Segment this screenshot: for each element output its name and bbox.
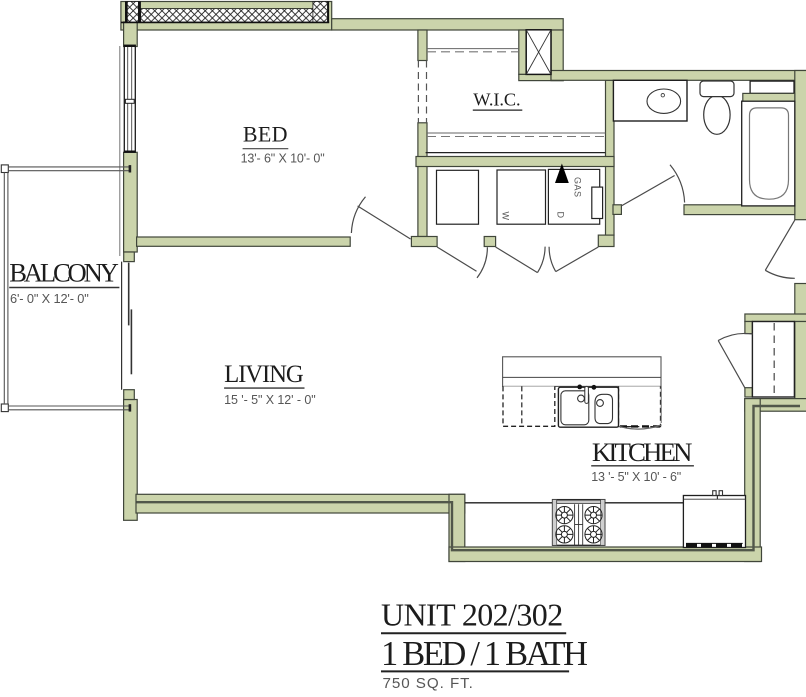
svg-text:W.I.C.: W.I.C.	[473, 89, 520, 109]
svg-text:6'- 0" X 12'- 0": 6'- 0" X 12'- 0"	[10, 291, 89, 306]
svg-text:BED: BED	[243, 121, 288, 146]
svg-text:13'- 6" X 10'- 0": 13'- 6" X 10'- 0"	[241, 152, 325, 166]
svg-text:D: D	[556, 212, 566, 219]
svg-text:15 '- 5" X 12' - 0": 15 '- 5" X 12' - 0"	[224, 393, 316, 407]
svg-text:KITCHEN: KITCHEN	[592, 437, 693, 467]
svg-text:BALCONY: BALCONY	[9, 258, 119, 288]
svg-text:750 SQ. FT.: 750 SQ. FT.	[383, 675, 473, 692]
svg-text:LIVING: LIVING	[224, 361, 304, 388]
svg-text:13 '- 5" X 10' - 6": 13 '- 5" X 10' - 6"	[591, 470, 681, 484]
svg-text:GAS: GAS	[573, 177, 583, 198]
svg-text:1 BED / 1 BATH: 1 BED / 1 BATH	[381, 635, 588, 673]
svg-text:UNIT 202/302: UNIT 202/302	[381, 597, 563, 633]
svg-text:W: W	[501, 212, 511, 221]
